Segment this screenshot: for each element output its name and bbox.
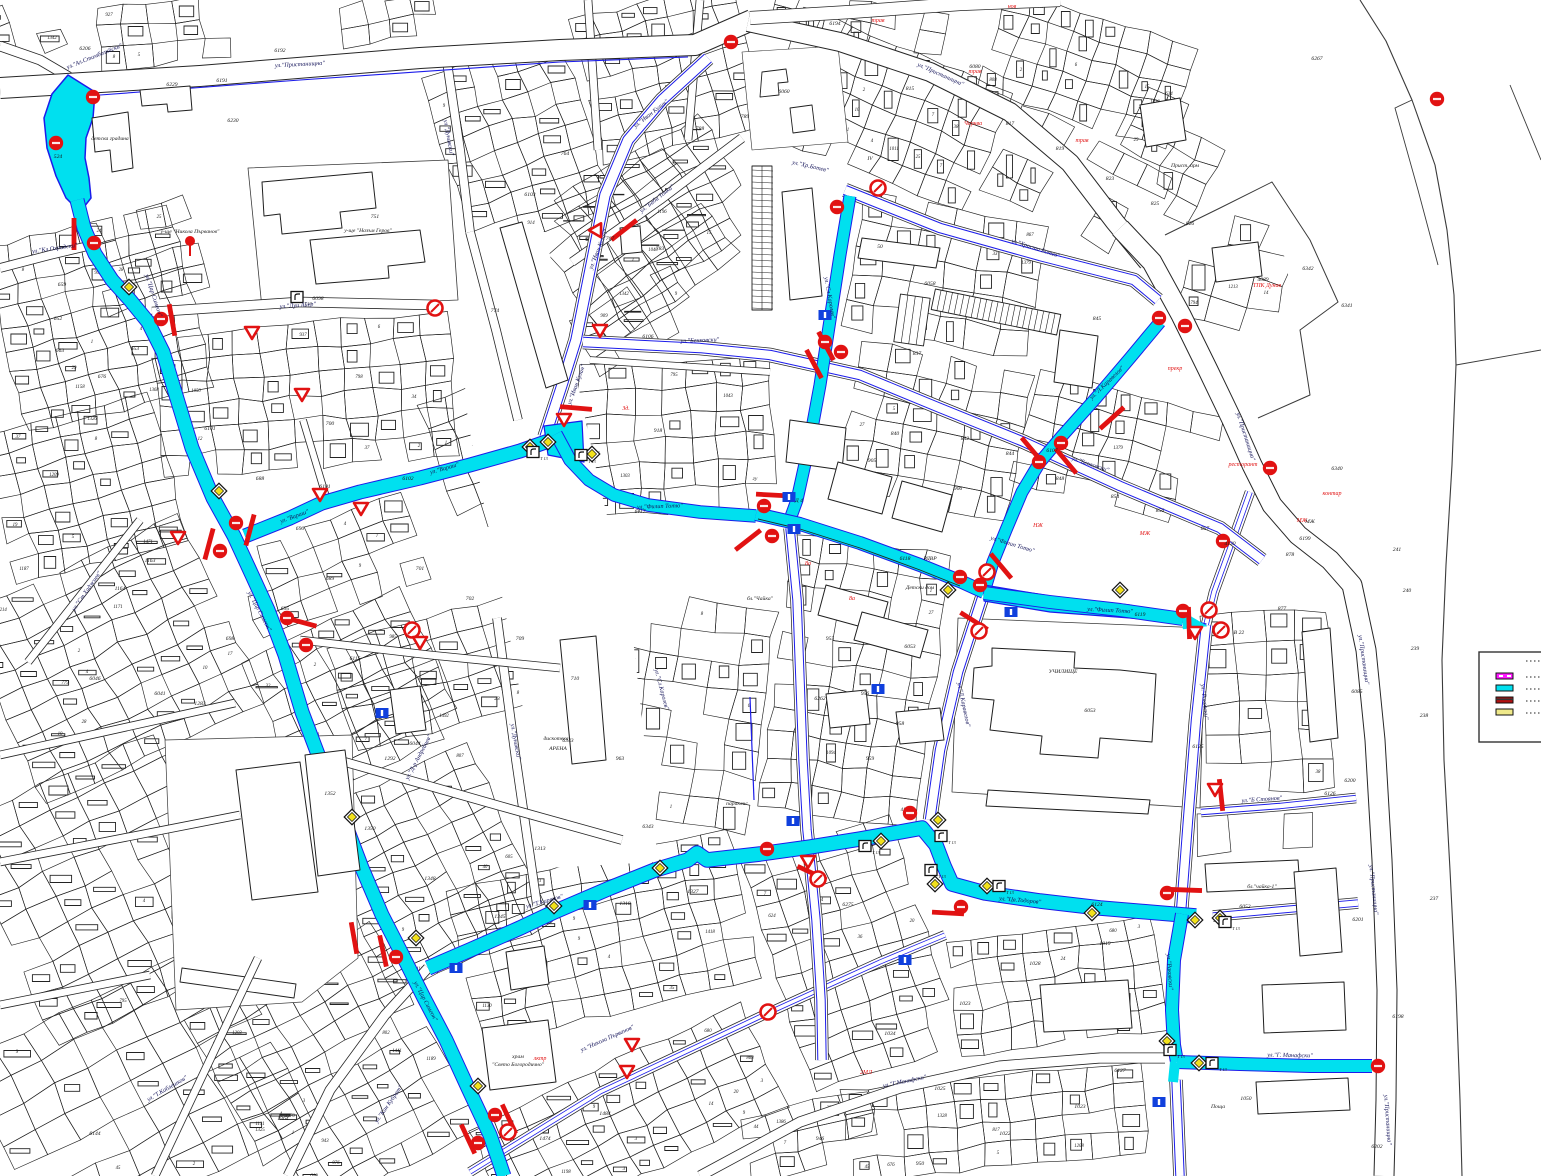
svg-text:45: 45 bbox=[865, 1165, 870, 1170]
svg-text:1364: 1364 bbox=[277, 1116, 288, 1122]
svg-text:ул."Г. Манафски": ул."Г. Манафски" bbox=[1266, 1052, 1313, 1060]
svg-text:Т 13: Т 13 bbox=[872, 850, 880, 855]
svg-text:1158: 1158 bbox=[75, 385, 85, 390]
svg-text:906: 906 bbox=[954, 486, 963, 492]
svg-text:653: 653 bbox=[131, 346, 140, 352]
svg-text:1164: 1164 bbox=[115, 586, 126, 592]
svg-text:1471: 1471 bbox=[143, 540, 153, 545]
svg-text:12: 12 bbox=[198, 437, 203, 442]
svg-text:IV: IV bbox=[866, 156, 873, 162]
svg-text:959: 959 bbox=[866, 756, 875, 762]
svg-text:848: 848 bbox=[1056, 476, 1065, 482]
svg-text:788: 788 bbox=[696, 126, 705, 132]
svg-text:Т 13: Т 13 bbox=[588, 459, 596, 464]
svg-text:25: 25 bbox=[916, 155, 921, 160]
svg-text:37: 37 bbox=[16, 435, 21, 440]
svg-text:878: 878 bbox=[1286, 552, 1295, 558]
svg-text:10: 10 bbox=[855, 108, 860, 113]
svg-text:854: 854 bbox=[1111, 494, 1120, 500]
svg-text:36: 36 bbox=[858, 935, 863, 940]
svg-text:6085: 6085 bbox=[1351, 689, 1362, 695]
svg-text:15: 15 bbox=[707, 231, 712, 236]
svg-text:840: 840 bbox=[891, 431, 900, 437]
svg-text:дискотека: дискотека bbox=[543, 735, 568, 742]
svg-text:695: 695 bbox=[281, 606, 290, 612]
svg-text:927: 927 bbox=[105, 13, 113, 18]
svg-text:524: 524 bbox=[54, 154, 63, 160]
svg-text:764: 764 bbox=[561, 151, 570, 157]
svg-text:779: 779 bbox=[61, 681, 69, 686]
svg-text:676: 676 bbox=[887, 1163, 895, 1168]
svg-text:1303: 1303 bbox=[620, 474, 630, 479]
svg-text:детска градина: детска градина bbox=[91, 135, 129, 142]
svg-text:28: 28 bbox=[82, 720, 87, 725]
svg-text:1043: 1043 bbox=[723, 394, 733, 399]
svg-text:Д 4: Д 4 bbox=[794, 498, 803, 504]
svg-text:239: 239 bbox=[1411, 646, 1420, 652]
svg-text:237: 237 bbox=[1430, 896, 1439, 902]
svg-text:6115: 6115 bbox=[350, 656, 361, 662]
svg-text:37: 37 bbox=[365, 446, 370, 451]
svg-text:Черква: Черква bbox=[964, 121, 982, 127]
svg-text:956: 956 bbox=[861, 691, 870, 697]
svg-text:1050: 1050 bbox=[191, 389, 201, 394]
svg-text:690: 690 bbox=[296, 526, 305, 532]
svg-text:20: 20 bbox=[734, 1090, 739, 1095]
svg-text:у-ще "Никола Първанов": у-ще "Никола Първанов" bbox=[160, 229, 220, 235]
svg-text:6202: 6202 bbox=[1371, 1144, 1382, 1150]
svg-text:трав: трав bbox=[969, 69, 982, 75]
svg-text:2МЛ: 2МЛ bbox=[860, 1070, 873, 1076]
svg-text:6124: 6124 bbox=[1091, 902, 1102, 908]
svg-text:27: 27 bbox=[860, 423, 865, 428]
svg-text:6117: 6117 bbox=[635, 509, 646, 515]
svg-text:6118: 6118 bbox=[900, 556, 911, 562]
svg-text:1342: 1342 bbox=[47, 36, 57, 41]
svg-text:35: 35 bbox=[670, 986, 675, 991]
svg-text:25: 25 bbox=[157, 215, 162, 220]
svg-text:6060: 6060 bbox=[778, 89, 789, 95]
svg-text:Т 13: Т 13 bbox=[1006, 890, 1014, 895]
svg-text:1198: 1198 bbox=[561, 1170, 571, 1175]
svg-text:985: 985 bbox=[389, 635, 397, 640]
svg-text:6200: 6200 bbox=[1344, 778, 1355, 784]
svg-text:6041: 6041 bbox=[154, 691, 165, 697]
svg-text:845: 845 bbox=[1093, 316, 1102, 322]
svg-text:1283: 1283 bbox=[194, 701, 205, 707]
svg-text:946: 946 bbox=[816, 1136, 825, 1142]
svg-text:877: 877 bbox=[1278, 606, 1287, 612]
svg-text:958: 958 bbox=[896, 721, 905, 727]
svg-text:6262: 6262 bbox=[814, 696, 825, 702]
svg-text:10: 10 bbox=[58, 732, 63, 737]
svg-text:8а: 8а bbox=[849, 596, 855, 602]
svg-text:6126: 6126 bbox=[1324, 791, 1335, 797]
svg-text:23: 23 bbox=[494, 696, 500, 702]
svg-text:783: 783 bbox=[656, 246, 665, 252]
svg-text:6206: 6206 bbox=[79, 46, 90, 52]
svg-text:АРЕНА: АРЕНА bbox=[548, 746, 567, 752]
svg-text:6343: 6343 bbox=[642, 824, 653, 830]
svg-text:976: 976 bbox=[332, 1161, 340, 1166]
svg-text:УЧИЛИЩЕ: УЧИЛИЩЕ bbox=[1049, 669, 1078, 675]
svg-text:6340: 6340 bbox=[1331, 466, 1342, 472]
svg-text:794: 794 bbox=[1190, 301, 1198, 306]
svg-text:240: 240 bbox=[1403, 588, 1412, 594]
svg-text:624: 624 bbox=[768, 914, 776, 919]
svg-text:1492: 1492 bbox=[439, 714, 449, 719]
svg-text:трав: трав bbox=[1076, 138, 1089, 144]
svg-text:ТПК Дунав: ТПК Дунав bbox=[1253, 283, 1282, 289]
svg-text:6230: 6230 bbox=[227, 118, 238, 124]
svg-text:гу: гу bbox=[753, 476, 758, 482]
svg-text:842: 842 bbox=[961, 436, 970, 442]
svg-text:1019: 1019 bbox=[1099, 941, 1110, 947]
svg-text:6192: 6192 bbox=[274, 48, 285, 54]
svg-text:ул."Бенковски": ул."Бенковски" bbox=[680, 336, 720, 344]
svg-text:767: 767 bbox=[606, 236, 615, 242]
svg-text:905: 905 bbox=[868, 458, 877, 464]
svg-text:751: 751 bbox=[371, 214, 380, 220]
svg-text:914: 914 bbox=[527, 221, 535, 226]
svg-text:50: 50 bbox=[877, 244, 883, 250]
svg-text:1318: 1318 bbox=[619, 901, 630, 907]
svg-text:1023: 1023 bbox=[1074, 1104, 1085, 1110]
svg-text:1187: 1187 bbox=[19, 567, 29, 572]
svg-text:лктр: лктр bbox=[533, 1056, 547, 1062]
svg-text:6229: 6229 bbox=[166, 82, 177, 88]
svg-text:МЖ: МЖ bbox=[1296, 518, 1308, 524]
svg-text:698: 698 bbox=[226, 636, 235, 642]
svg-text:29: 29 bbox=[72, 366, 77, 371]
svg-text:Т 13: Т 13 bbox=[1177, 1054, 1185, 1059]
svg-text:1325: 1325 bbox=[255, 1128, 265, 1133]
svg-text:40: 40 bbox=[483, 865, 488, 870]
svg-text:856: 856 bbox=[1156, 508, 1165, 514]
svg-text:837: 837 bbox=[913, 351, 922, 357]
svg-text:1208: 1208 bbox=[1074, 1144, 1084, 1149]
svg-text:1: 1 bbox=[670, 805, 672, 810]
svg-text:241: 241 bbox=[1393, 547, 1402, 553]
svg-text:6098: 6098 bbox=[312, 296, 323, 302]
svg-text:1050: 1050 bbox=[1240, 1096, 1251, 1102]
svg-text:710: 710 bbox=[571, 676, 580, 682]
svg-text:817: 817 bbox=[1006, 121, 1015, 127]
svg-text:701: 701 bbox=[416, 566, 425, 572]
svg-text:867: 867 bbox=[1026, 233, 1034, 238]
svg-text:20: 20 bbox=[910, 919, 915, 924]
svg-text:ресторант: ресторант bbox=[1228, 462, 1259, 468]
svg-text:1130: 1130 bbox=[482, 1004, 492, 1009]
svg-text:950: 950 bbox=[916, 1161, 925, 1167]
svg-text:1342: 1342 bbox=[619, 292, 629, 297]
svg-text:937: 937 bbox=[299, 333, 307, 338]
svg-text:МЖ: МЖ bbox=[1139, 531, 1151, 537]
svg-text:6144: 6144 bbox=[89, 1131, 100, 1137]
svg-text:807: 807 bbox=[456, 754, 464, 759]
svg-text:6101: 6101 bbox=[319, 484, 330, 490]
svg-text:909: 909 bbox=[600, 314, 608, 319]
svg-text:6103: 6103 bbox=[524, 192, 535, 198]
svg-text:34: 34 bbox=[412, 395, 417, 400]
svg-text:нов: нов bbox=[1008, 4, 1017, 10]
svg-text:238: 238 bbox=[1420, 713, 1429, 719]
svg-text:прекр: прекр bbox=[1168, 366, 1182, 372]
svg-text:1292: 1292 bbox=[384, 756, 395, 762]
svg-text:6198: 6198 bbox=[1392, 1014, 1403, 1020]
svg-text:6341: 6341 bbox=[1341, 303, 1352, 309]
svg-text:1028: 1028 bbox=[1029, 961, 1040, 967]
svg-text:4130: 4130 bbox=[1224, 541, 1235, 547]
svg-text:943: 943 bbox=[321, 1139, 329, 1144]
svg-text:1348: 1348 bbox=[424, 876, 435, 882]
svg-text:бл."Чайка": бл."Чайка" bbox=[747, 595, 774, 602]
svg-text:1171: 1171 bbox=[113, 605, 122, 610]
svg-text:1022: 1022 bbox=[999, 1131, 1010, 1137]
svg-text:28: 28 bbox=[119, 268, 124, 273]
svg-text:6107: 6107 bbox=[1046, 448, 1057, 454]
svg-text:1350: 1350 bbox=[364, 826, 375, 832]
svg-text:параклис: параклис bbox=[726, 801, 748, 807]
svg-text:1163: 1163 bbox=[145, 558, 156, 564]
svg-text:808: 808 bbox=[989, 78, 997, 83]
svg-text:825: 825 bbox=[1151, 201, 1160, 207]
svg-text:1209: 1209 bbox=[49, 473, 59, 478]
svg-text:1327: 1327 bbox=[687, 889, 698, 895]
svg-text:1: 1 bbox=[445, 441, 447, 446]
svg-text:709: 709 bbox=[516, 636, 525, 642]
svg-text:33: 33 bbox=[993, 252, 998, 257]
svg-text:24: 24 bbox=[97, 229, 102, 234]
svg-text:6053: 6053 bbox=[904, 644, 915, 650]
svg-text:789: 789 bbox=[741, 114, 750, 120]
svg-text:1474: 1474 bbox=[539, 1136, 550, 1142]
svg-text:652: 652 bbox=[54, 316, 63, 322]
svg-text:Т 13: Т 13 bbox=[1219, 1067, 1227, 1072]
svg-text:"Свето Богородично": "Свето Богородично" bbox=[492, 1061, 545, 1068]
svg-text:1352: 1352 bbox=[324, 791, 335, 797]
svg-text:798: 798 bbox=[355, 375, 363, 380]
svg-text:802: 802 bbox=[382, 1031, 390, 1036]
svg-text:6101: 6101 bbox=[204, 426, 215, 432]
svg-text:17: 17 bbox=[228, 652, 233, 657]
svg-text:1214: 1214 bbox=[0, 608, 7, 613]
svg-text:6342: 6342 bbox=[1302, 266, 1313, 272]
svg-text:963: 963 bbox=[616, 756, 625, 762]
svg-text:32: 32 bbox=[266, 684, 271, 689]
svg-text:Зд.: Зд. bbox=[622, 405, 630, 412]
svg-text:храм: храм bbox=[511, 1054, 524, 1060]
svg-text:44: 44 bbox=[754, 1125, 759, 1130]
svg-text:6275: 6275 bbox=[842, 902, 853, 908]
svg-text:1379: 1379 bbox=[1021, 261, 1031, 266]
svg-text:680: 680 bbox=[1109, 929, 1117, 934]
svg-text:6044: 6044 bbox=[409, 741, 420, 747]
svg-text:НЖ: НЖ bbox=[1032, 523, 1043, 529]
svg-text:38: 38 bbox=[954, 125, 959, 130]
svg-text:857: 857 bbox=[1201, 526, 1210, 532]
svg-text:Т 13: Т 13 bbox=[938, 874, 946, 879]
svg-text:659: 659 bbox=[58, 282, 67, 288]
svg-text:1034: 1034 bbox=[884, 1031, 895, 1037]
svg-text:19: 19 bbox=[13, 523, 18, 528]
svg-text:1: 1 bbox=[91, 340, 93, 345]
svg-text:6102: 6102 bbox=[402, 476, 413, 482]
svg-text:823: 823 bbox=[1106, 176, 1115, 182]
svg-text:1196: 1196 bbox=[657, 210, 667, 215]
svg-text:1: 1 bbox=[292, 1131, 294, 1136]
svg-text:29: 29 bbox=[1134, 138, 1139, 143]
svg-text:6194: 6194 bbox=[829, 21, 840, 27]
svg-text:1441: 1441 bbox=[392, 1049, 402, 1054]
svg-text:14: 14 bbox=[709, 1102, 714, 1107]
svg-text:В 22: В 22 bbox=[1234, 630, 1245, 636]
svg-text:844: 844 bbox=[1006, 451, 1015, 457]
svg-text:27: 27 bbox=[929, 611, 934, 616]
svg-text:1418: 1418 bbox=[705, 930, 715, 935]
svg-text:8а: 8а bbox=[805, 561, 811, 567]
svg-text:10: 10 bbox=[203, 666, 208, 671]
svg-text:868: 868 bbox=[746, 1056, 754, 1061]
svg-text:6119: 6119 bbox=[1135, 612, 1146, 618]
svg-text:бл."чайка-1": бл."чайка-1" bbox=[1247, 883, 1277, 890]
svg-text:1094: 1094 bbox=[826, 751, 836, 756]
svg-text:1345: 1345 bbox=[494, 914, 505, 920]
svg-text:688: 688 bbox=[256, 476, 265, 482]
svg-text:6201: 6201 bbox=[1352, 917, 1363, 923]
svg-text:605: 605 bbox=[505, 855, 513, 860]
svg-text:трав: трав bbox=[872, 18, 885, 24]
svg-text:6046: 6046 bbox=[89, 676, 100, 682]
svg-text:45: 45 bbox=[116, 1166, 121, 1171]
svg-text:774: 774 bbox=[491, 308, 500, 314]
svg-text:1328: 1328 bbox=[937, 1114, 947, 1119]
svg-text:795: 795 bbox=[670, 373, 678, 378]
svg-text:Т 13: Т 13 bbox=[948, 840, 956, 845]
svg-text:6053: 6053 bbox=[1084, 708, 1095, 714]
svg-text:1023: 1023 bbox=[959, 1001, 970, 1007]
svg-text:1313: 1313 bbox=[534, 846, 545, 852]
svg-text:24: 24 bbox=[1061, 957, 1066, 962]
svg-text:795: 795 bbox=[119, 999, 127, 1004]
svg-text:663: 663 bbox=[56, 348, 65, 354]
svg-text:1213: 1213 bbox=[1228, 285, 1238, 290]
svg-text:Прист. арм: Прист. арм bbox=[1170, 163, 1199, 169]
svg-text:815: 815 bbox=[906, 86, 915, 92]
svg-text:6058: 6058 bbox=[924, 281, 935, 287]
svg-text:1189: 1189 bbox=[426, 1057, 436, 1062]
svg-text:700: 700 bbox=[326, 421, 335, 427]
svg-text:Детски дом: Детски дом bbox=[905, 584, 935, 591]
svg-text:1025: 1025 bbox=[934, 1086, 945, 1092]
svg-text:918: 918 bbox=[654, 428, 663, 434]
svg-text:Т 13: Т 13 bbox=[540, 456, 548, 461]
svg-text:у-ще "Назъм Геров": у-ще "Назъм Геров" bbox=[343, 228, 392, 234]
svg-text:контар: контар bbox=[1323, 491, 1342, 497]
svg-text:826: 826 bbox=[1186, 221, 1195, 227]
svg-text:676: 676 bbox=[98, 374, 107, 380]
svg-text:1203: 1203 bbox=[232, 1031, 242, 1036]
svg-text:Т 13: Т 13 bbox=[1232, 926, 1240, 931]
svg-text:1: 1 bbox=[632, 258, 634, 263]
svg-text:6191: 6191 bbox=[216, 78, 227, 84]
svg-text:6106: 6106 bbox=[642, 334, 653, 340]
svg-text:955: 955 bbox=[826, 636, 835, 642]
svg-text:680: 680 bbox=[704, 1029, 712, 1034]
svg-text:РДВР: РДВР bbox=[922, 556, 937, 562]
svg-text:1131: 1131 bbox=[255, 1122, 264, 1127]
svg-text:702: 702 bbox=[466, 596, 475, 602]
svg-text:6127: 6127 bbox=[1114, 1068, 1125, 1074]
svg-text:1011: 1011 bbox=[889, 147, 898, 152]
svg-text:819: 819 bbox=[1056, 146, 1065, 152]
svg-text:689: 689 bbox=[326, 576, 335, 582]
svg-text:1379: 1379 bbox=[1113, 446, 1123, 451]
svg-text:1484: 1484 bbox=[599, 1111, 610, 1117]
svg-text:1326: 1326 bbox=[87, 417, 97, 422]
svg-text:14: 14 bbox=[1264, 291, 1269, 296]
svg-text:6267: 6267 bbox=[1311, 56, 1322, 62]
svg-text:6052: 6052 bbox=[1239, 904, 1250, 910]
svg-text:6199: 6199 bbox=[1299, 536, 1310, 542]
svg-text:6125: 6125 bbox=[1192, 744, 1203, 750]
svg-text:38: 38 bbox=[1316, 770, 1321, 775]
svg-text:Поща: Поща bbox=[1210, 1104, 1225, 1110]
